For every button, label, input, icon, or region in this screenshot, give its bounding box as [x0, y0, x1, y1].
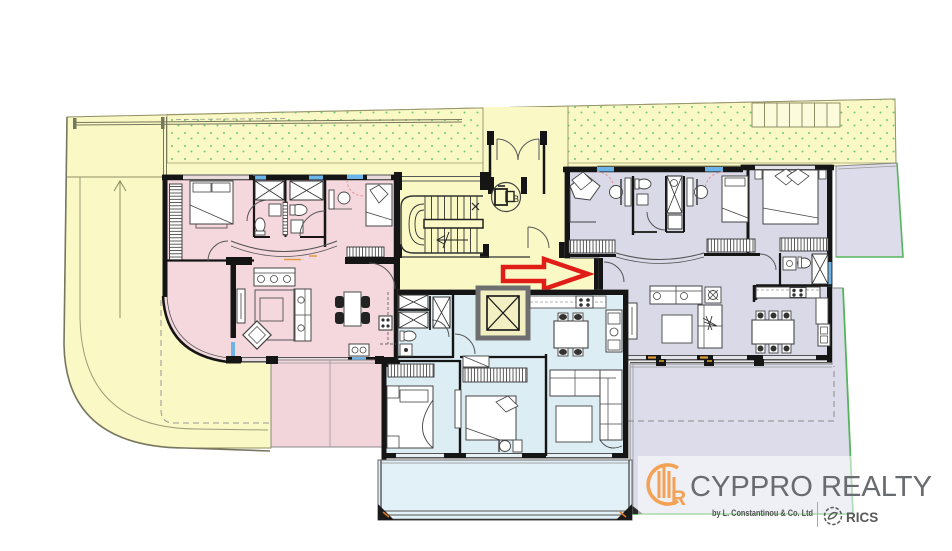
svg-text:CYPPRO REALTY: CYPPRO REALTY [690, 471, 932, 503]
svg-text:RICS: RICS [846, 510, 878, 525]
svg-text:R: R [671, 487, 686, 510]
svg-text:by L. Constantinou & Co. Ltd: by L. Constantinou & Co. Ltd [712, 508, 813, 519]
svg-text:B: B [513, 194, 519, 204]
